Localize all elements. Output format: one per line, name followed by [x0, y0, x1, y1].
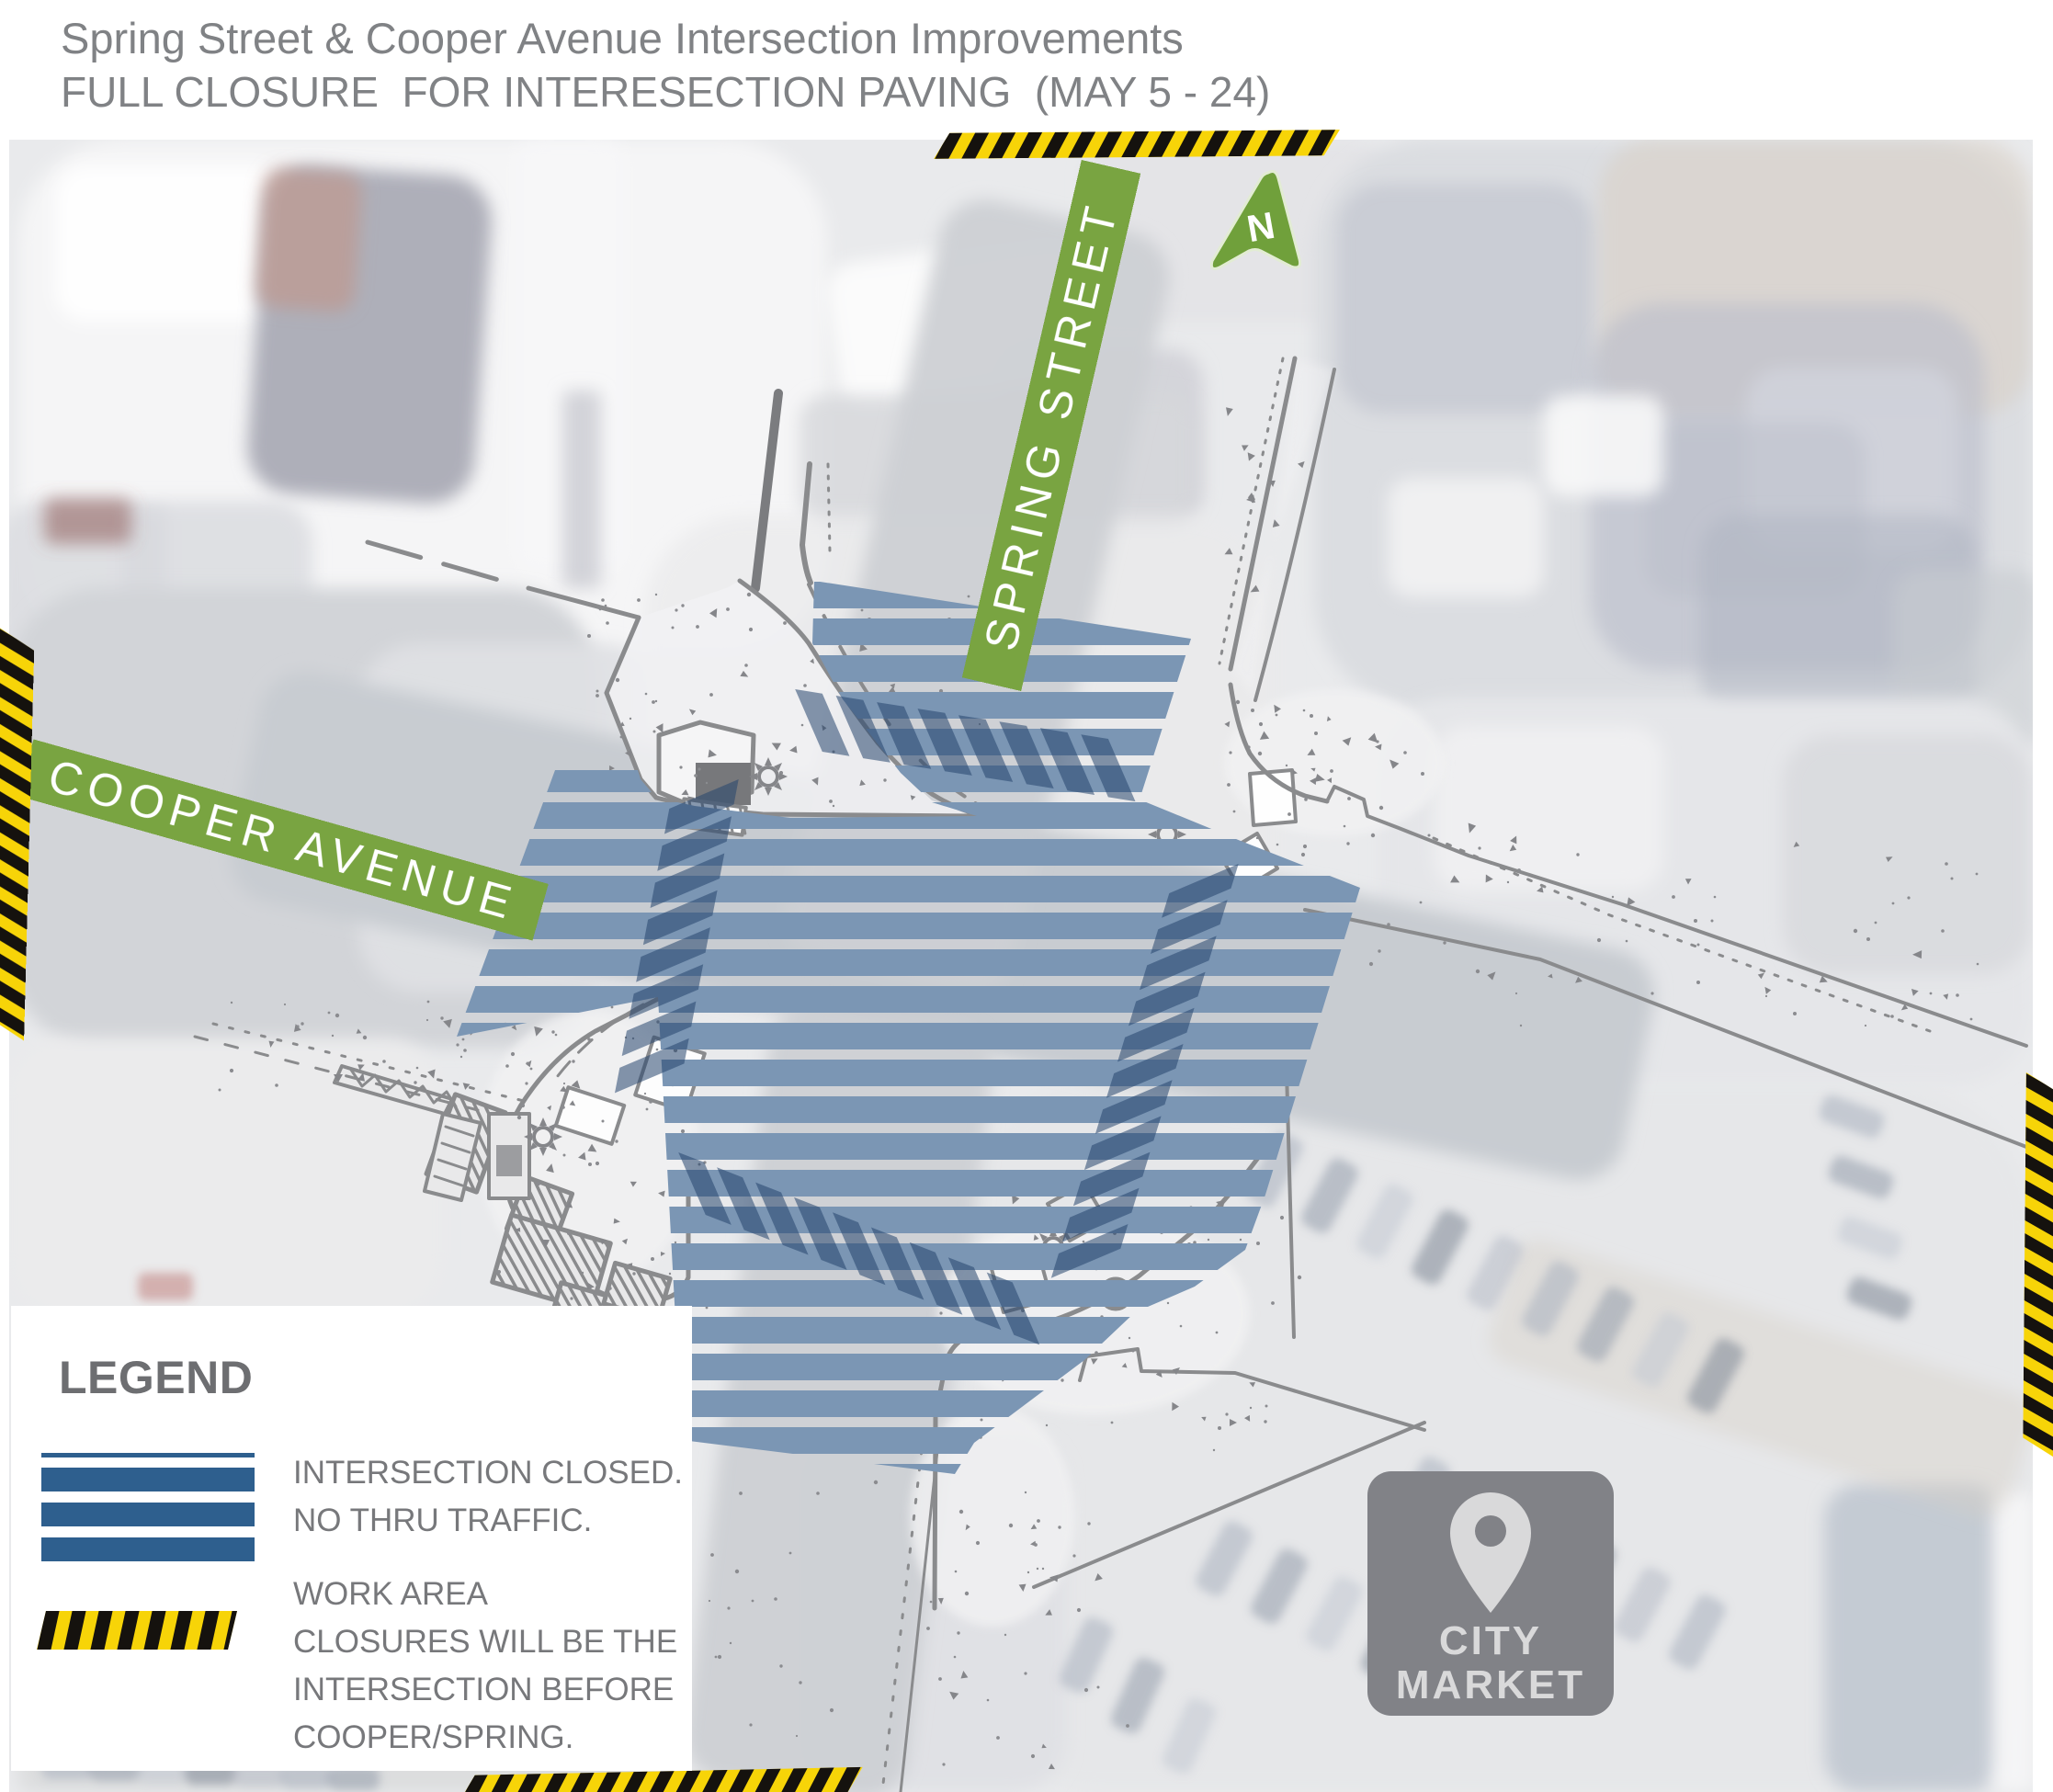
svg-text:WORK AREA: WORK AREA [293, 1576, 489, 1612]
svg-text:LEGEND: LEGEND [59, 1352, 253, 1403]
svg-text:CLOSURES WILL BE THE: CLOSURES WILL BE THE [293, 1624, 677, 1660]
svg-text:CITY: CITY [1439, 1618, 1542, 1663]
svg-text:MARKET: MARKET [1396, 1662, 1585, 1707]
svg-text:INTERSECTION CLOSED.: INTERSECTION CLOSED. [293, 1455, 683, 1491]
svg-text:COOPER/SPRING.: COOPER/SPRING. [293, 1719, 573, 1755]
svg-text:NO THRU TRAFFIC.: NO THRU TRAFFIC. [293, 1503, 592, 1538]
svg-text:INTERSECTION BEFORE: INTERSECTION BEFORE [293, 1672, 674, 1707]
